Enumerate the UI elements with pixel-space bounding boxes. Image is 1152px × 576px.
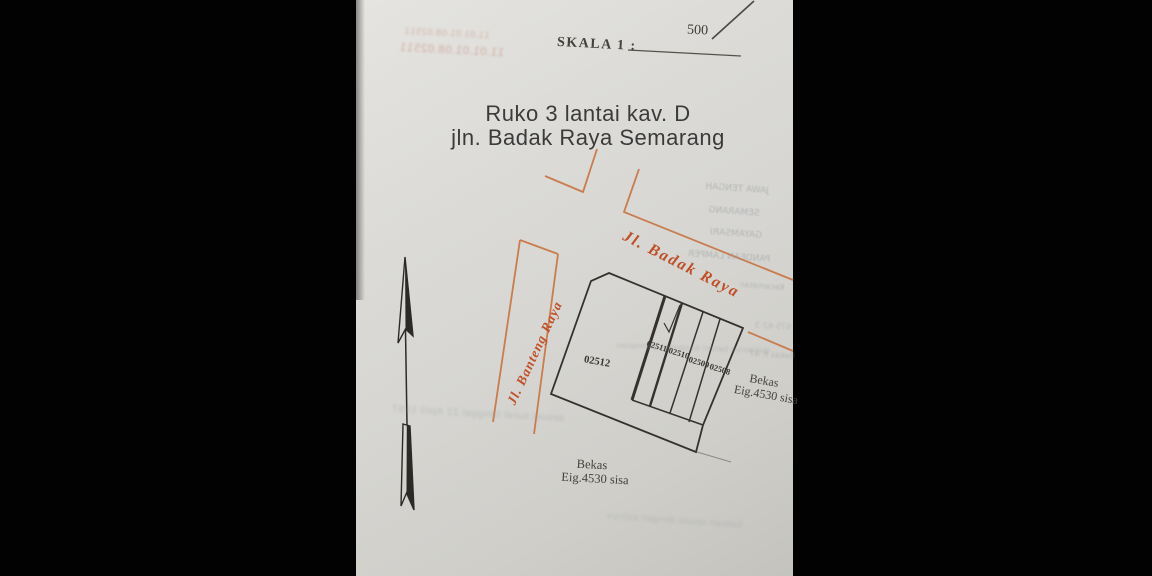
north-street-west-edge [545,149,597,192]
scale-tick-line [712,1,754,39]
bleedthrough-note-right-2: 075-62-3 [755,321,792,332]
photo-of-site-plan: SKALA 1 : 500 Ruko 3 lantai kav. D jln. … [0,0,1152,576]
north-arrow-icon [398,257,414,510]
jl-badak-raya-south-edge-left [520,240,558,254]
scale-value: 500 [687,22,709,39]
scale-underline [628,50,741,56]
page-title-line1: Ruko 3 lantai kav. D [485,101,690,127]
site-plan-drawing [0,0,1152,576]
page-title-line2: jln. Badak Raya Semarang [451,125,725,151]
pencil-extension-line [697,452,731,462]
